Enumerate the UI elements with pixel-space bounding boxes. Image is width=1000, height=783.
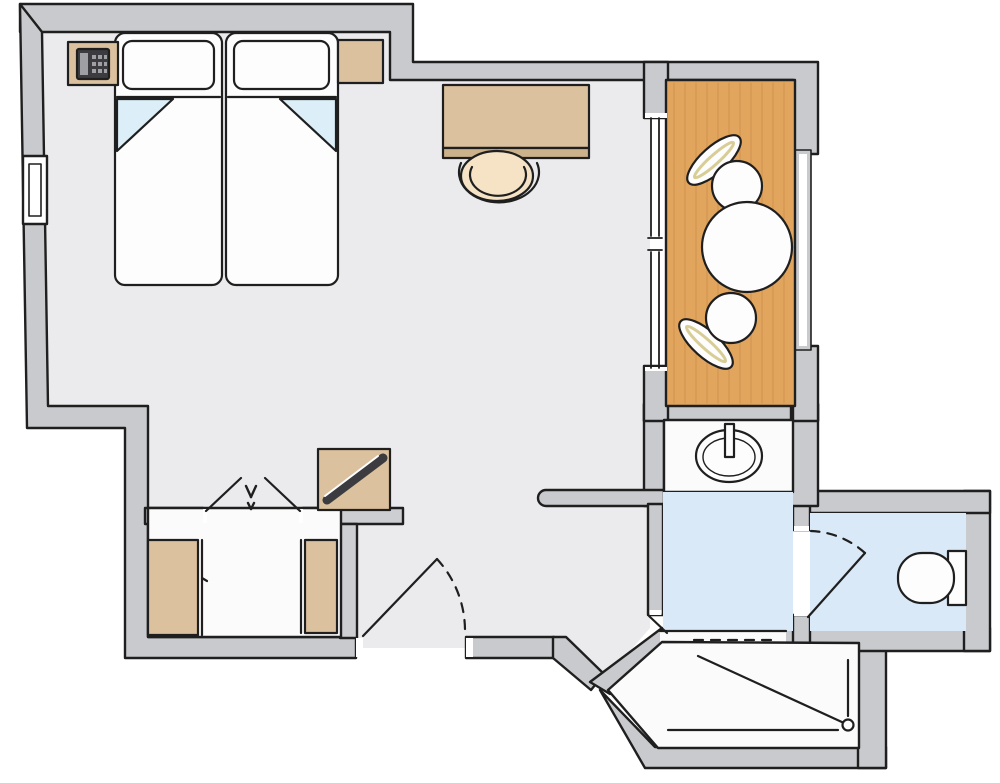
wall-balcony-stub-top xyxy=(644,62,668,118)
floor-plan-svg xyxy=(0,0,1000,783)
shower-tray xyxy=(608,642,859,748)
balcony-table xyxy=(702,202,792,292)
wall-balcony-stub-bottom xyxy=(644,366,668,421)
wall-bottom-right-of-door xyxy=(466,637,554,658)
wardrobe-left xyxy=(148,540,198,635)
shower-drain xyxy=(843,720,854,731)
wall-balcony-right-lower-stub xyxy=(793,346,818,421)
wc-door-jamb-top xyxy=(794,526,809,531)
entry-door-jamb-right xyxy=(466,638,473,657)
entry-door-jamb-left xyxy=(356,638,363,657)
floor-plan-canvas xyxy=(0,0,1000,783)
phone-keypad xyxy=(92,55,107,73)
basin-tap xyxy=(725,424,734,457)
toilet-bowl xyxy=(898,553,954,603)
desk xyxy=(443,85,589,148)
nightstand-right xyxy=(338,40,383,83)
wall-wc-top xyxy=(791,491,990,513)
railing-inner-gap xyxy=(799,154,807,346)
glass-door-top-jamb xyxy=(645,113,667,118)
luggage-rack xyxy=(318,449,390,510)
wall-bathroom-left xyxy=(648,504,663,615)
toilet xyxy=(898,551,966,605)
pillow-right xyxy=(234,41,329,89)
wall-stub-main-bathroom xyxy=(538,490,664,506)
wc-door-jamb-bottom xyxy=(794,611,809,616)
pillow-left xyxy=(123,41,214,89)
glass-door-bottom-jamb xyxy=(645,367,667,371)
shelf-counter-stem xyxy=(340,524,357,638)
window-left-wall xyxy=(23,156,47,224)
wardrobe-right xyxy=(305,540,337,633)
chair-lower-seat xyxy=(706,293,756,343)
twin-beds xyxy=(115,33,338,285)
telephone xyxy=(77,49,109,79)
bathroom-wall-end-cap xyxy=(650,610,662,615)
bathroom-floor xyxy=(663,492,793,631)
phone-handset xyxy=(80,53,88,75)
wall-wc-right xyxy=(964,491,990,651)
